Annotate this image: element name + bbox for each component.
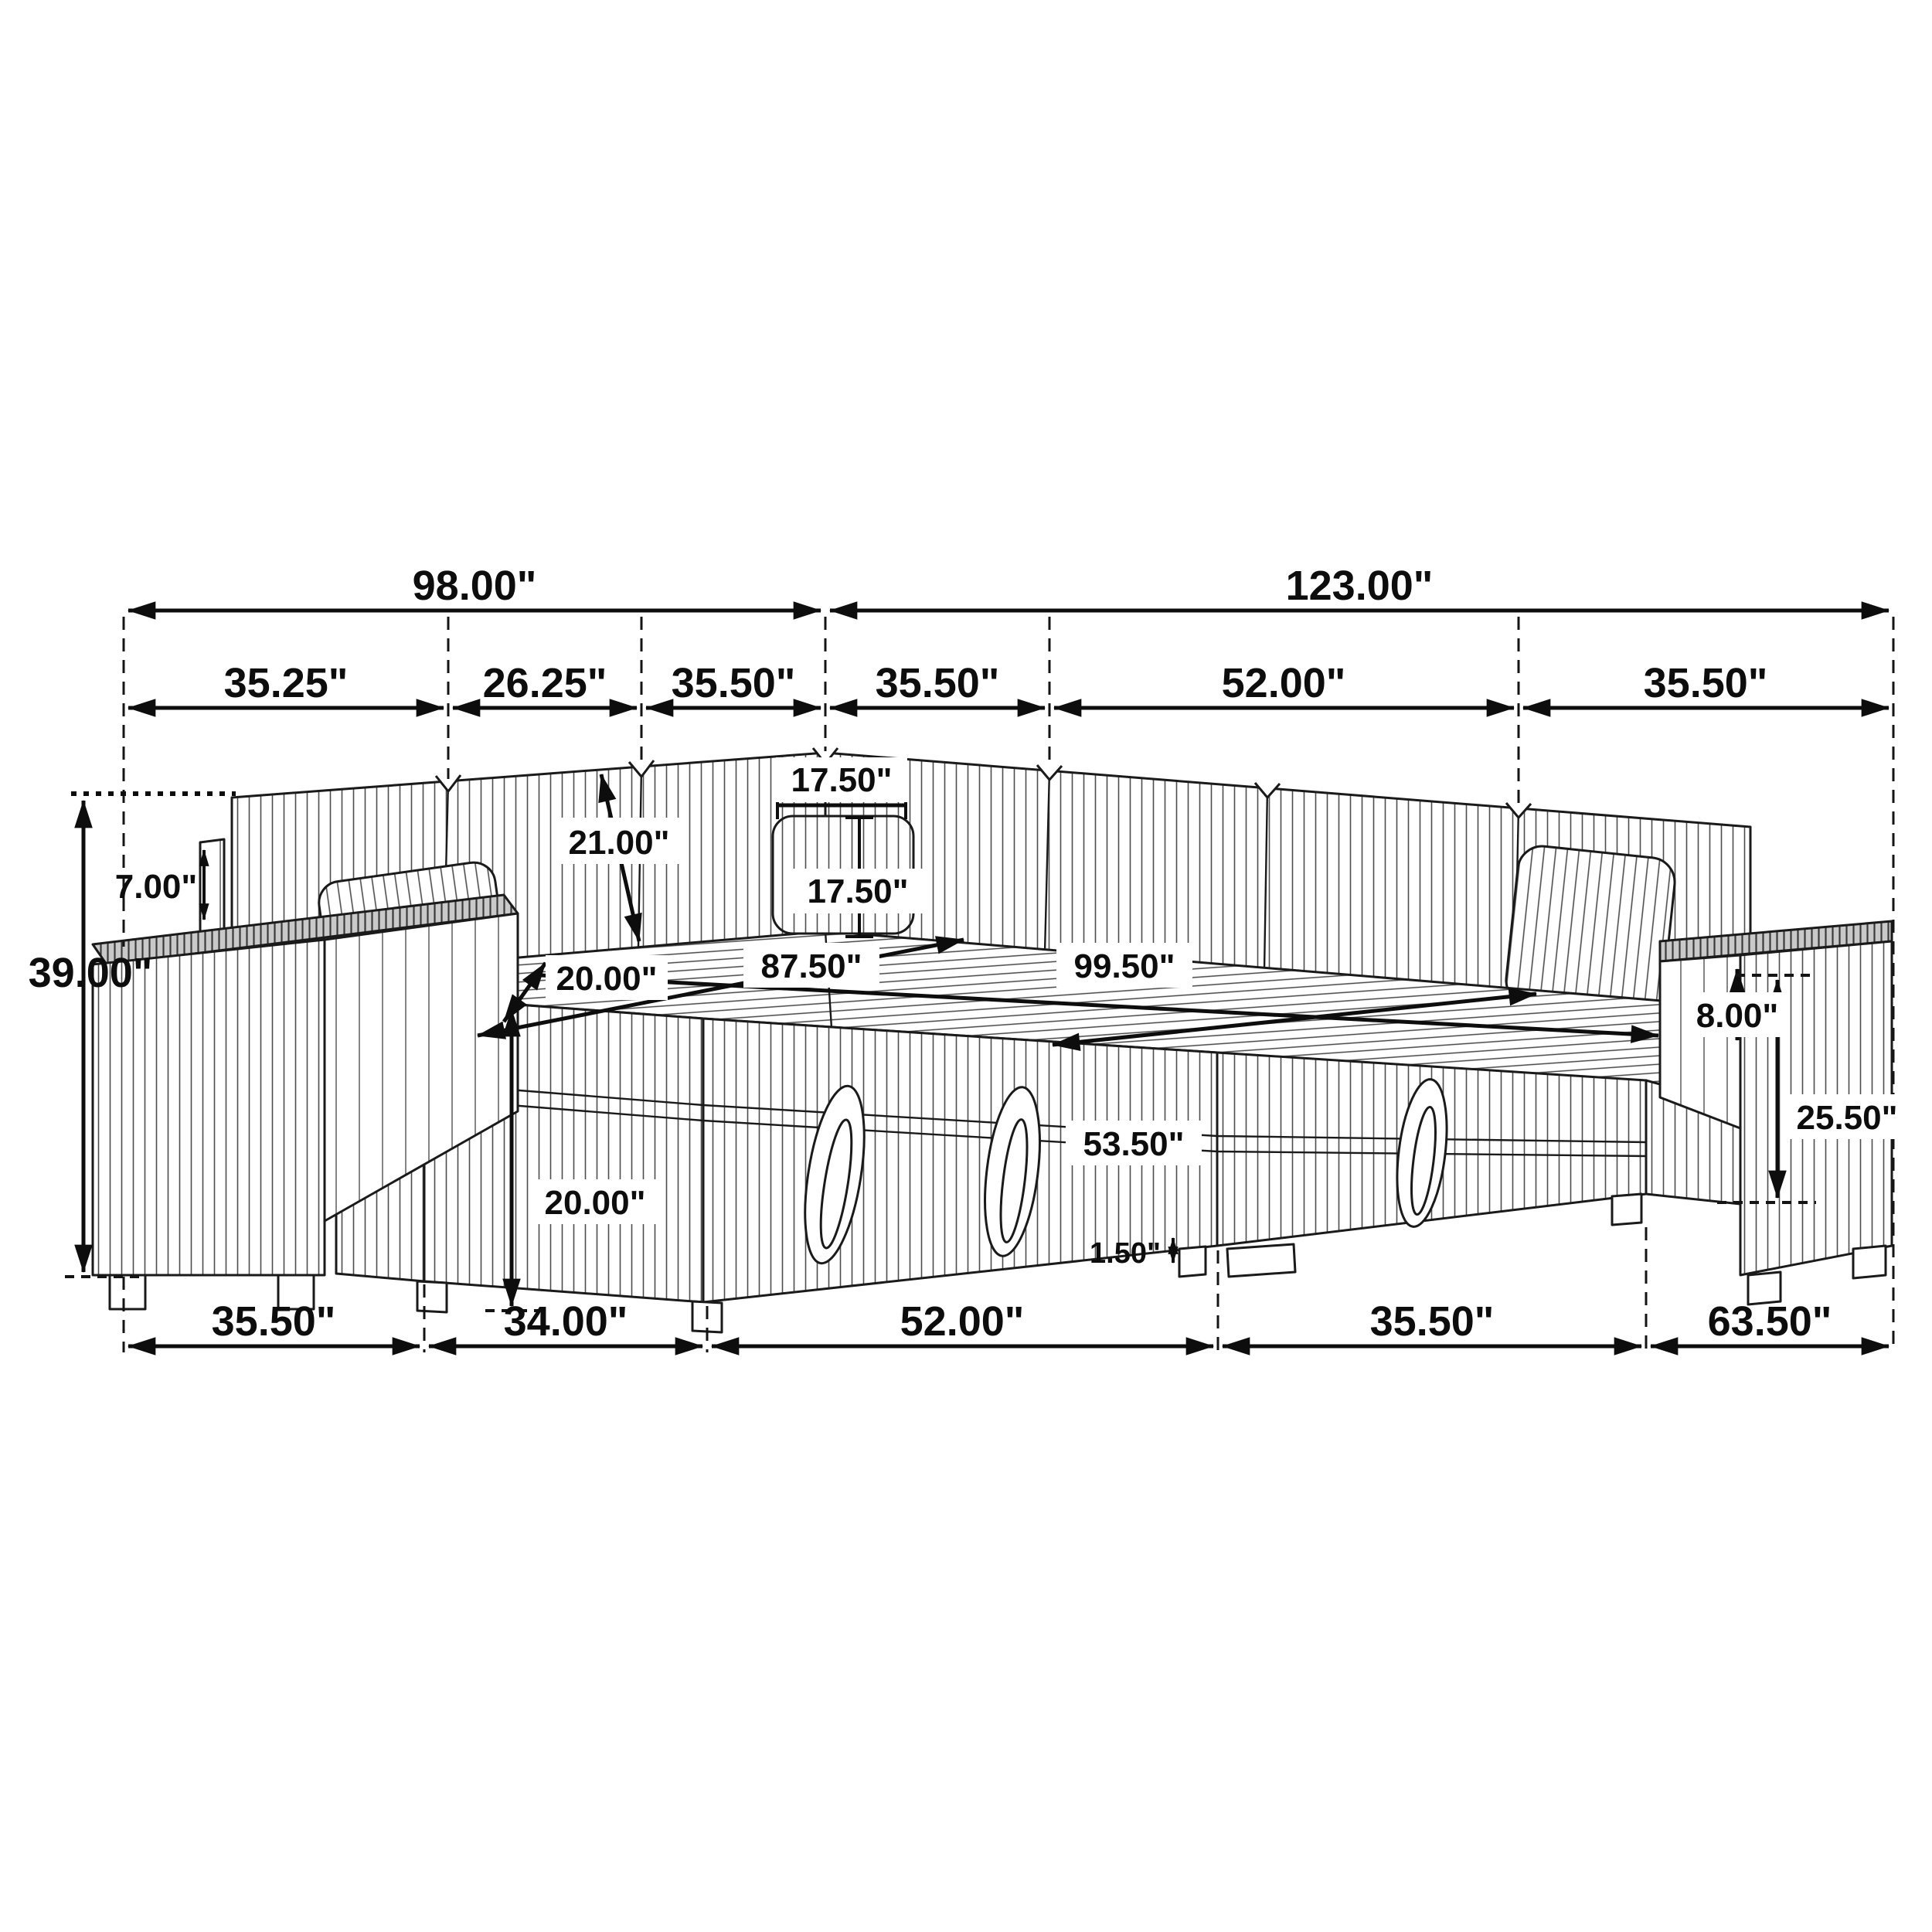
- dim-label-bottom-1: 35.50": [212, 1298, 336, 1345]
- dim-label-bed-depth: 53.50": [1083, 1125, 1185, 1163]
- dim-label-upper-6: 35.50": [1644, 660, 1768, 706]
- dim-label-bottom-2: 34.00": [504, 1298, 628, 1345]
- dim-label-pillow-height: 17.50": [808, 872, 909, 910]
- dim-label-upper-4: 35.50": [876, 660, 1000, 706]
- dim-label-upper-3: 35.50": [672, 660, 796, 706]
- sofa-line-art: [93, 748, 1892, 1332]
- sofa-foot: [1612, 1194, 1641, 1225]
- dim-label-total-height: 39.00": [29, 950, 153, 996]
- right-arm-inner-side: [1660, 955, 1740, 1128]
- dim-label-bed-width: 87.50": [761, 947, 862, 985]
- dim-label-upper-1: 35.25": [224, 660, 349, 706]
- dim-label-seat-height: 20.00": [545, 1184, 646, 1222]
- sofa-foot: [110, 1275, 145, 1309]
- sofa-foot: [417, 1281, 447, 1312]
- dim-label-upper-2: 26.25": [483, 660, 607, 706]
- dim-label-bed-length: 99.50": [1074, 947, 1175, 985]
- dim-label-arm-total-height: 25.50": [1797, 1099, 1898, 1137]
- dim-label-back-cushion: 21.00": [569, 824, 670, 862]
- dim-label-overall-right: 123.00": [1286, 563, 1434, 609]
- sofa-foot-wide: [1227, 1244, 1295, 1277]
- dim-label-foot-clearance: 1.50": [1090, 1237, 1161, 1270]
- sectional-dimension-drawing: 98.00" 123.00" 35.25" 26.25" 35.50" 35.5…: [0, 0, 1932, 1932]
- dim-label-bottom-5: 63.50": [1708, 1298, 1832, 1345]
- dim-label-bottom-4: 35.50": [1370, 1298, 1495, 1345]
- sofa-foot: [1853, 1246, 1886, 1278]
- dimension-diagram-canvas: 98.00" 123.00" 35.25" 26.25" 35.50" 35.5…: [0, 0, 1932, 1932]
- dim-label-arm-post: 7.00": [115, 868, 198, 906]
- dim-label-overall-left: 98.00": [413, 563, 537, 609]
- dim-label-bottom-3: 52.00": [900, 1298, 1025, 1345]
- dim-label-arm-above-seat: 8.00": [1696, 997, 1779, 1035]
- sofa-foot: [1179, 1247, 1206, 1277]
- dim-label-seat-depth: 20.00": [556, 960, 658, 998]
- dim-label-pillow-width: 17.50": [791, 761, 893, 799]
- dim-label-upper-5: 52.00": [1222, 660, 1346, 706]
